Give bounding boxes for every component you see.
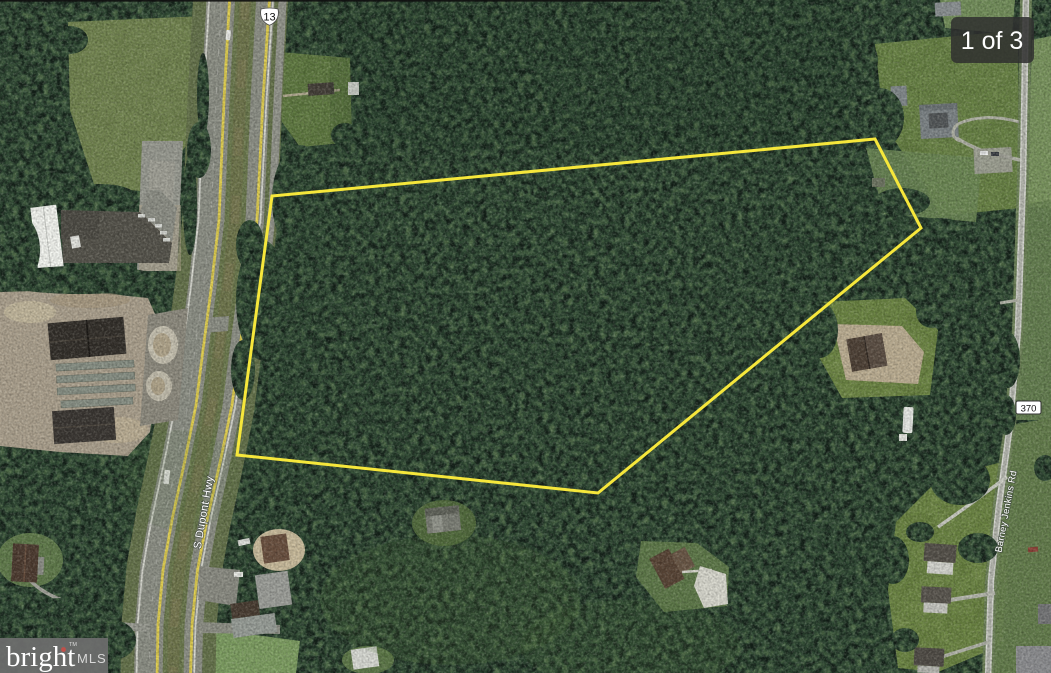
svg-text:TM: TM	[69, 642, 77, 648]
svg-text:MLS: MLS	[77, 651, 107, 666]
svg-text:1 of 3: 1 of 3	[961, 27, 1024, 55]
svg-text:370: 370	[1021, 404, 1037, 415]
svg-text:bright: bright	[6, 641, 75, 673]
svg-text:13: 13	[263, 12, 275, 24]
